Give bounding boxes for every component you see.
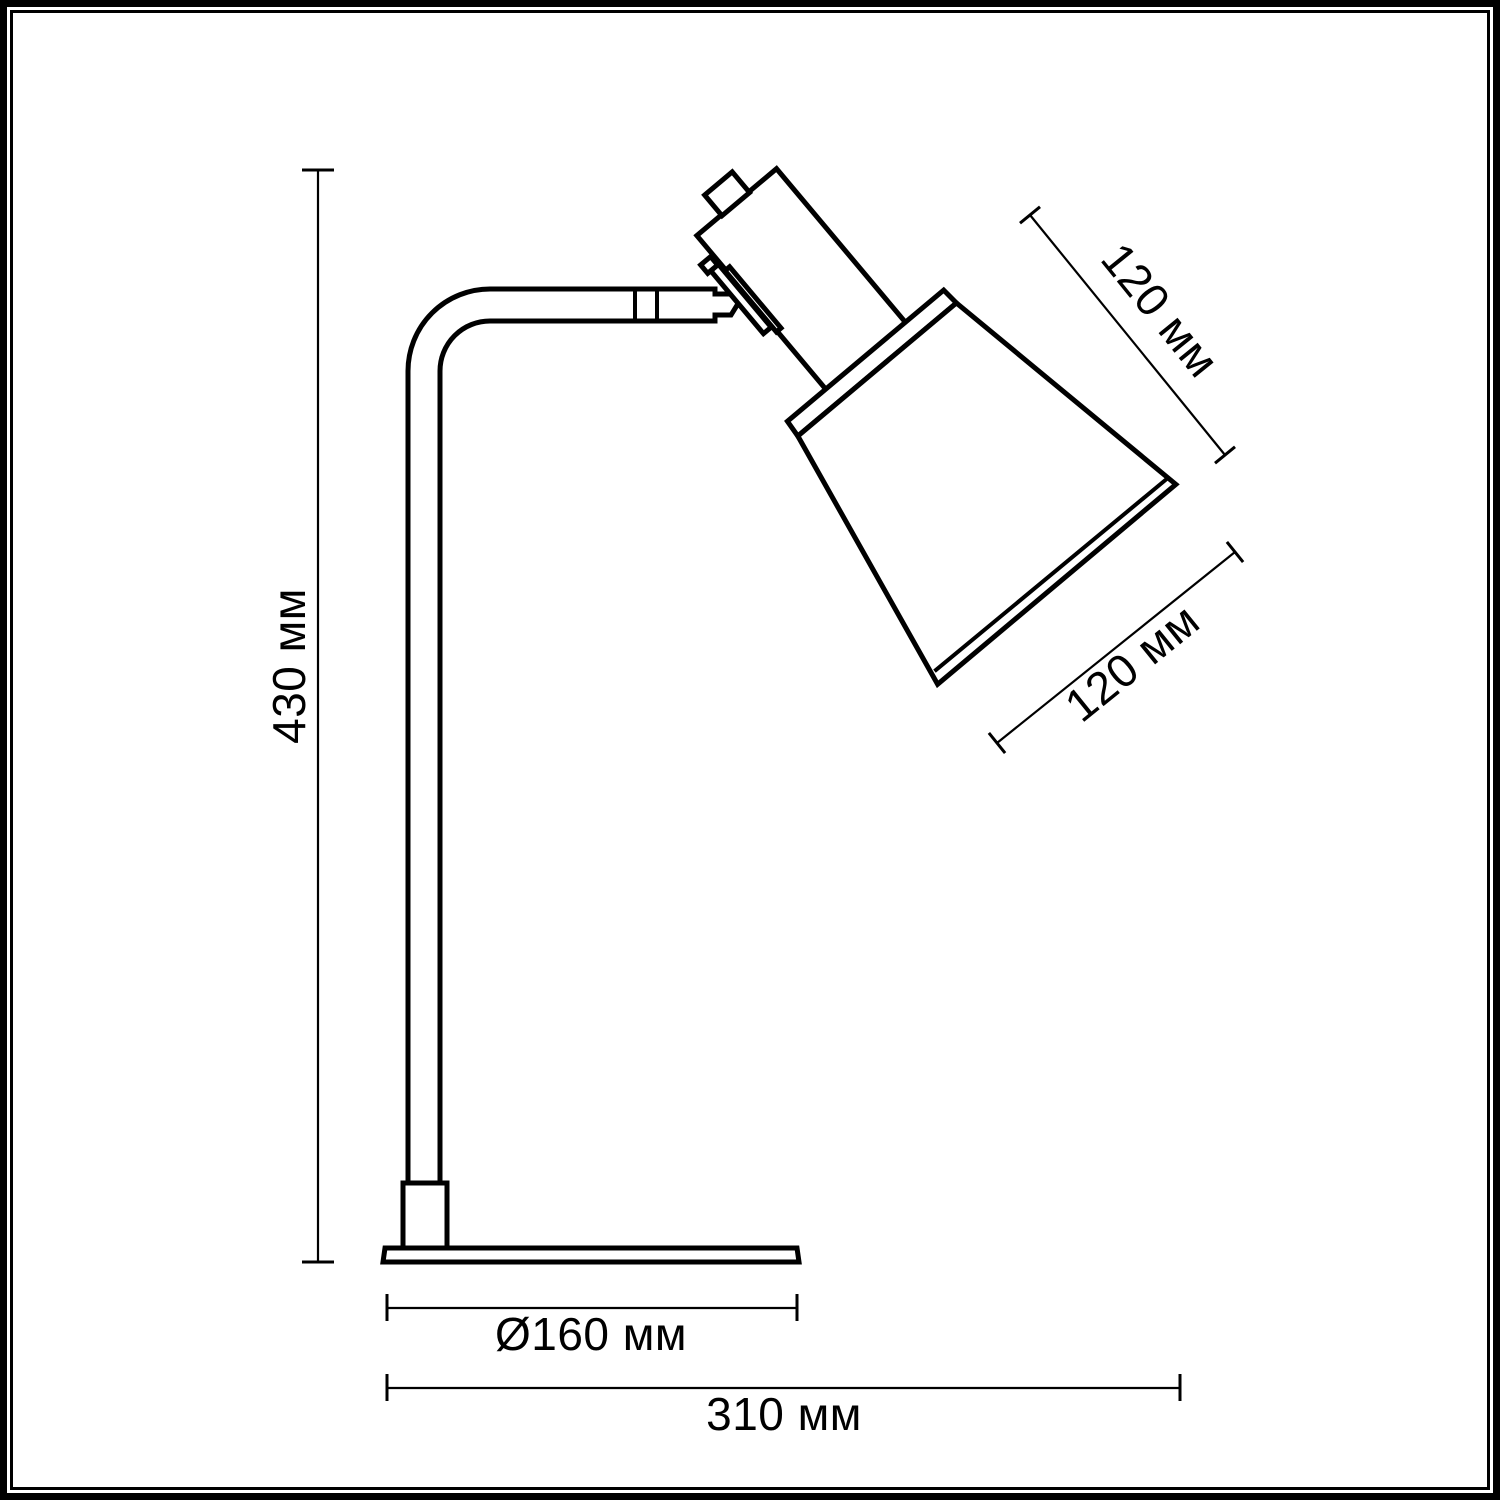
lamp-arm-and-pole bbox=[408, 289, 739, 1250]
diagram-canvas: 430 мм 120 мм 120 мм Ø160 мм 310 мм bbox=[0, 0, 1500, 1500]
dim-shade-bottom-tick-2 bbox=[1227, 542, 1243, 562]
lamp-base bbox=[383, 1248, 799, 1262]
lamp-head-assembly bbox=[600, 83, 1175, 685]
pole-collar bbox=[403, 1183, 447, 1248]
dim-shade-top-tick-2 bbox=[1215, 447, 1235, 463]
dim-height-label: 430 мм bbox=[263, 588, 315, 744]
dim-shade-top-tick-1 bbox=[1020, 207, 1040, 223]
lamp-dimension-diagram: 430 мм 120 мм 120 мм Ø160 мм 310 мм bbox=[0, 0, 1500, 1500]
dim-shade-bottom-label: 120 мм bbox=[1055, 593, 1209, 731]
dim-overall-width-label: 310 мм bbox=[706, 1388, 862, 1440]
dim-shade-bottom-tick-1 bbox=[989, 733, 1005, 753]
lamp-drawing bbox=[383, 83, 1176, 1262]
dim-shade-top-label: 120 мм bbox=[1091, 233, 1229, 387]
dim-base-diameter-label: Ø160 мм bbox=[495, 1308, 687, 1360]
